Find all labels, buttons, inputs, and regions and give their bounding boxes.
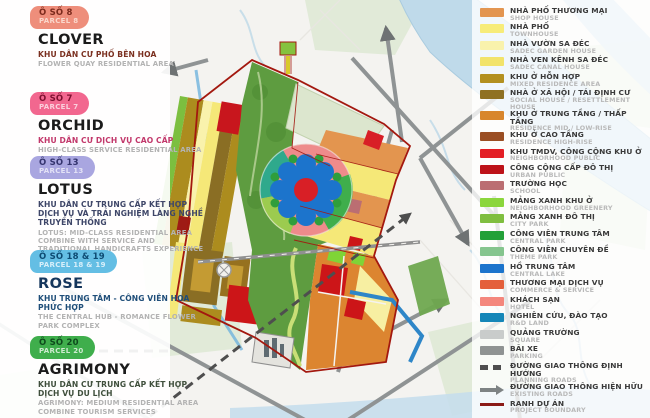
legend-label-en: HOTEL: [510, 304, 560, 311]
roundabout: [217, 263, 231, 277]
legend-swatch: [480, 313, 504, 322]
legend-item: NGHIÊN CỨU, ĐÀO TẠO R&D LAND: [480, 312, 648, 326]
legend-swatch: [480, 90, 504, 99]
legend-item: NHÀ VEN KÊNH SA ĐÉC SADEC CANAL HOUSE: [480, 56, 648, 70]
dashed-road-icon: [480, 365, 504, 370]
legend-swatch: [480, 132, 504, 141]
parcel-number-en: PARCEL 13: [39, 168, 84, 175]
legend-item: ĐƯỜNG GIAO THÔNG HIỆN HỮU EXISTING ROADS: [480, 383, 648, 397]
legend-label-en: THEME PARK: [510, 254, 609, 261]
legend-swatch: [480, 264, 504, 273]
legend-label-vn: KHU Ở TRUNG TẦNG / THẤP TẦNG: [510, 110, 648, 126]
arrow-road-icon: [480, 386, 504, 394]
parcel-number-en: PARCEL 20: [39, 348, 84, 355]
legend-item: RANH DỰ ÁN PROJECT BOUNDARY: [480, 400, 648, 414]
legend-item: NHÀ PHỐ TOWNHOUSE: [480, 23, 648, 37]
legend-swatch: [480, 280, 504, 289]
legend-swatch: [480, 198, 504, 207]
flower-park: [260, 144, 352, 236]
parcel-description-en: THE CENTRAL HUB - ROMANCE FLOWER PARK CO…: [38, 313, 208, 330]
parcel-description-en: FLOWER QUAY RESIDENTIAL AREA: [38, 60, 208, 68]
legend-label-en: SCHOOL: [510, 188, 567, 195]
legend-item: MẢNG XANH ĐÔ THỊ CITY PARK: [480, 213, 648, 227]
legend-panel: NHÀ PHỐ THƯƠNG MẠI SHOP HOUSE NHÀ PHỐ TO…: [474, 0, 650, 418]
legend-swatch: [480, 330, 504, 339]
masterplan-poster: Ô SỐ 8 PARCEL 8 CLOVER KHU DÂN CƯ PHỐ BÊ…: [0, 0, 650, 418]
legend-item: KHU TMDV, CÔNG CỘNG KHU Ở NEIGHBORHOOD P…: [480, 148, 648, 162]
legend-label-en: NEIGHBORHOOD GREENERY: [510, 205, 613, 212]
parcel-badge: Ô SỐ 13 PARCEL 13: [30, 156, 95, 179]
legend-item: MẢNG XANH KHU Ở NEIGHBORHOOD GREENERY: [480, 197, 648, 211]
legend-item: NHÀ Ở XÃ HỘI / TÁI ĐỊNH CƯ SOCIAL HOUSE …: [480, 89, 648, 107]
legend-item: CÔNG VIÊN TRUNG TÂM CENTRAL PARK: [480, 230, 648, 244]
boundary-line-icon: [480, 403, 504, 406]
legend-label-vn: ĐƯỜNG GIAO THÔNG ĐỊNH HƯỚNG: [510, 362, 648, 378]
parcel-label-group: Ô SỐ 7 PARCEL 7 ORCHID KHU DÂN CƯ DỊCH V…: [0, 92, 205, 155]
legend-label-en: EXISTING ROADS: [510, 391, 643, 398]
legend-item: KHU Ở TRUNG TẦNG / THẤP TẦNG RESIDENCE M…: [480, 110, 648, 129]
parcel-label-group: Ô SỐ 13 PARCEL 13 LOTUS KHU DÂN CƯ TRUNG…: [0, 156, 205, 254]
legend-label-en: R&D LAND: [510, 320, 608, 327]
legend-label-en: CENTRAL LAKE: [510, 271, 575, 278]
legend-swatch: [480, 149, 504, 158]
legend-swatch: [480, 41, 504, 50]
legend-label-en: URBAN PUBLIC: [510, 172, 613, 179]
legend-swatch: [480, 297, 504, 306]
legend-label-en: MIXED RESIDENCE AREA: [510, 81, 600, 88]
legend-swatch: [480, 111, 504, 120]
parcel-description-vn: KHU DÂN CƯ PHỐ BÊN HOA: [38, 50, 210, 59]
legend-swatch: [480, 181, 504, 190]
legend-item: NHÀ PHỐ THƯƠNG MẠI SHOP HOUSE: [480, 7, 648, 21]
legend-label-en: COMMERCE & SERVICE: [510, 287, 604, 294]
legend-swatch: [480, 214, 504, 223]
parcel-description-vn: KHU DÂN CƯ TRUNG CẤP KẾT HỢP DỊCH VỤ VÀ …: [38, 200, 210, 227]
legend-item: KHÁCH SẠN HOTEL: [480, 296, 648, 310]
parcel-name: ORCHID: [38, 118, 205, 134]
legend-item: NHÀ VƯỜN SA ĐÉC SADEC GARDEN HOUSE: [480, 40, 648, 54]
legend-label-en: SHOP HOUSE: [510, 15, 607, 22]
legend-label-en: SQUARE: [510, 337, 580, 344]
parcel-badge: Ô SỐ 7 PARCEL 7: [30, 92, 89, 115]
legend-item: TRƯỜNG HỌC SCHOOL: [480, 180, 648, 194]
parcel-label-group: Ô SỐ 20 PARCEL 20 AGRIMONY KHU DÂN CƯ TR…: [0, 336, 205, 416]
legend-swatch: [480, 346, 504, 355]
legend-label-en: PARKING: [510, 353, 543, 360]
legend-swatch: [480, 165, 504, 174]
parcel-description-en: AGRIMONY: MEDIUM RESIDENTIAL AREA COMBIN…: [38, 399, 208, 416]
parcel-number-en: PARCEL 8: [39, 18, 78, 25]
parcel-number-en: PARCEL 18 & 19: [39, 262, 106, 269]
legend-item: ĐƯỜNG GIAO THÔNG ĐỊNH HƯỚNG PLANNING ROA…: [480, 362, 648, 381]
legend-label-en: SADEC GARDEN HOUSE: [510, 48, 596, 55]
legend-swatch: [480, 57, 504, 66]
legend-label-en: CENTRAL PARK: [510, 238, 610, 245]
parcel-name: ROSE: [38, 276, 205, 292]
legend-label-en: NEIGHBORHOOD PUBLIC: [510, 155, 642, 162]
parcel-description-vn: KHU DÂN CƯ DỊCH VỤ CAO CẤP: [38, 136, 210, 145]
parcel-description-en: HIGH-CLASS SERVICE RESIDENTIAL AREA: [38, 146, 208, 154]
legend-item: QUẢNG TRƯỜNG SQUARE: [480, 329, 648, 343]
legend-label-en: CITY PARK: [510, 221, 595, 228]
parcel-description-vn: KHU TRUNG TÂM - CÔNG VIÊN HOA PHỨC HỢP: [38, 294, 210, 312]
parcel-label-group: Ô SỐ 8 PARCEL 8 CLOVER KHU DÂN CƯ PHỐ BÊ…: [0, 6, 205, 69]
legend-swatch: [480, 8, 504, 17]
legend-item: THƯƠNG MẠI DỊCH VỤ COMMERCE & SERVICE: [480, 279, 648, 293]
parcel-label-group: Ô SỐ 18 & 19 PARCEL 18 & 19 ROSE KHU TRU…: [0, 250, 205, 330]
parcel-badge: Ô SỐ 18 & 19 PARCEL 18 & 19: [30, 250, 117, 273]
parcel-badge: Ô SỐ 8 PARCEL 8: [30, 6, 89, 29]
legend-label-en: SADEC CANAL HOUSE: [510, 64, 608, 71]
legend-item: CÔNG CỘNG CẤP ĐÔ THỊ URBAN PUBLIC: [480, 164, 648, 178]
legend-label-en: TOWNHOUSE: [510, 31, 558, 38]
parcel-number-en: PARCEL 7: [39, 104, 78, 111]
legend-item: KHU Ở HỖN HỢP MIXED RESIDENCE AREA: [480, 73, 648, 87]
legend-item: HỒ TRUNG TÂM CENTRAL LAKE: [480, 263, 648, 277]
legend-swatch: [480, 24, 504, 33]
parcel-name: LOTUS: [38, 182, 205, 198]
legend-swatch: [480, 231, 504, 240]
legend-label-en: PROJECT BOUNDARY: [510, 407, 586, 414]
legend-label-en: RESIDENCE HIGH-RISE: [510, 139, 593, 146]
parcel-name: AGRIMONY: [38, 362, 205, 378]
flower-center: [294, 178, 318, 202]
legend-swatch: [480, 74, 504, 83]
parcel-name: CLOVER: [38, 32, 205, 48]
parcel-badge: Ô SỐ 20 PARCEL 20: [30, 336, 95, 359]
legend-item: BÃI XE PARKING: [480, 345, 648, 359]
legend-item: KHU Ở CAO TẦNG RESIDENCE HIGH-RISE: [480, 131, 648, 145]
legend-swatch: [480, 247, 504, 256]
legend-item: CÔNG VIÊN CHUYÊN ĐỀ THEME PARK: [480, 246, 648, 260]
parcel-description-vn: KHU DÂN CƯ TRUNG CẤP KẾT HỢP DỊCH VỤ DU …: [38, 380, 210, 398]
parcel-labels-panel: Ô SỐ 8 PARCEL 8 CLOVER KHU DÂN CƯ PHỐ BÊ…: [0, 0, 212, 418]
